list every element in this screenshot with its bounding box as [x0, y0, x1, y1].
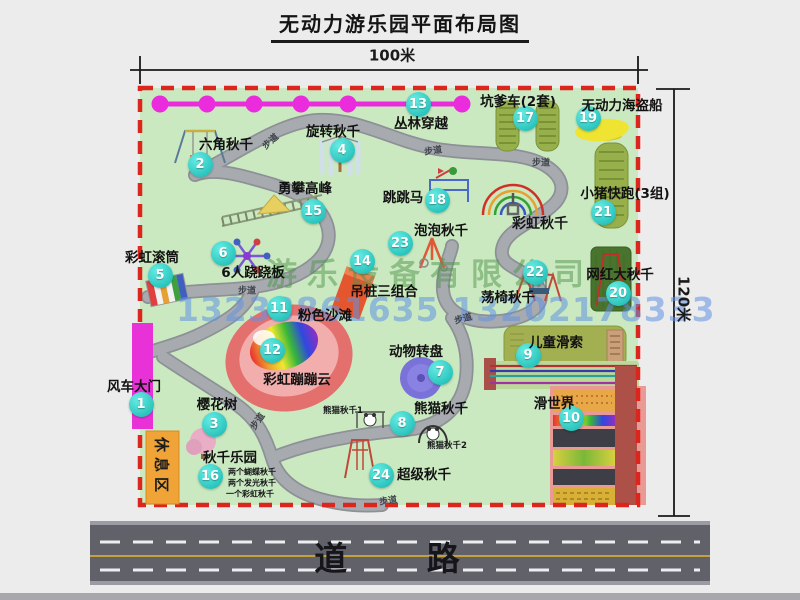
- page-title: 无动力游乐园平面布局图: [271, 8, 529, 43]
- road-label: 道 路: [314, 532, 494, 580]
- slide-world-icon: [550, 366, 646, 505]
- big-swing-icon: [591, 247, 631, 311]
- piggy-run-icon: [595, 143, 628, 228]
- gate-label: 风车大门: [107, 375, 161, 395]
- animal-carousel-icon: [400, 357, 442, 399]
- image-bottom-edge: [0, 593, 800, 600]
- rest-area-label: 休息区: [152, 437, 173, 497]
- park-map: 无动力游乐园平面布局图: [0, 0, 800, 600]
- height-dimension-label: 120米: [674, 276, 695, 322]
- width-dimension-label: 100米: [369, 45, 415, 66]
